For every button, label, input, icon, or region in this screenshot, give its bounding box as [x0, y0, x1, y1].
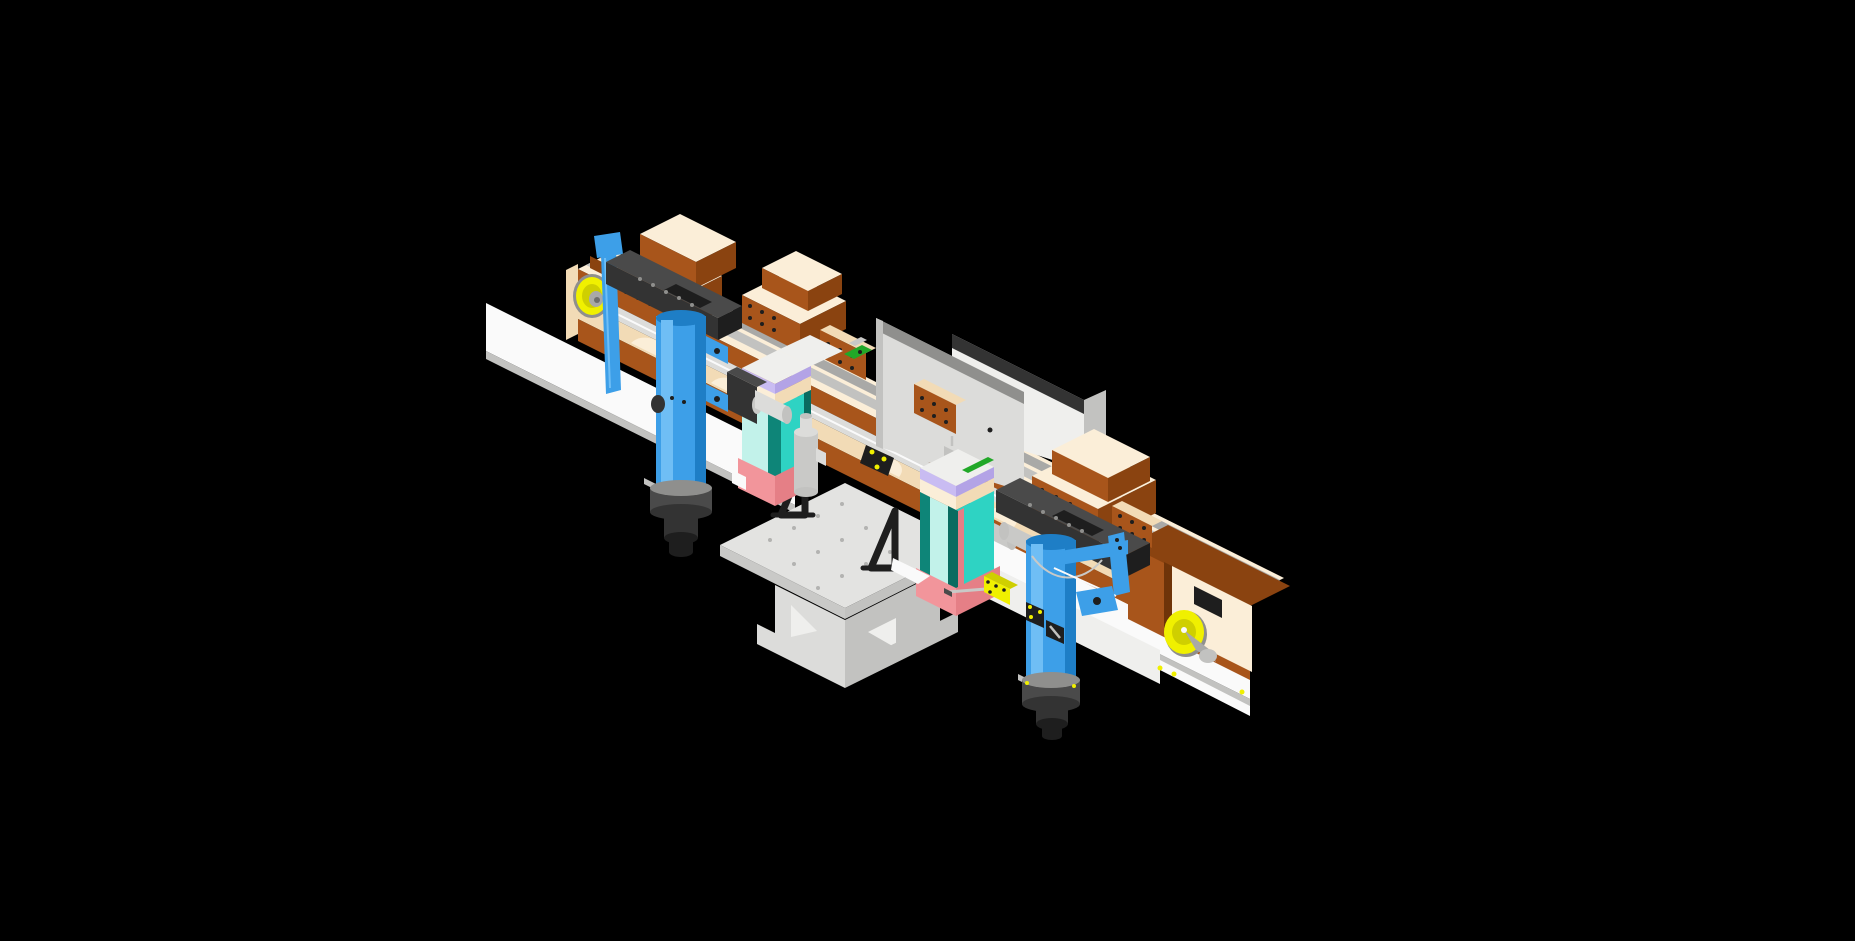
- cad-3d-viewport[interactable]: [0, 0, 1855, 941]
